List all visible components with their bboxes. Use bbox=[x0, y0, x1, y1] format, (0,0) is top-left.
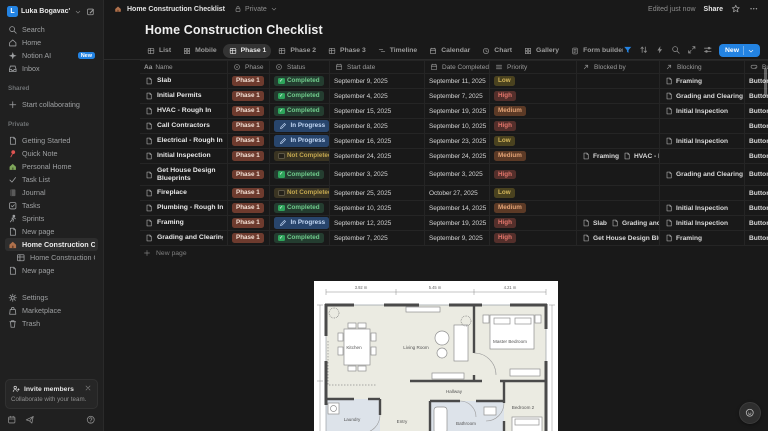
scrollbar-thumb[interactable] bbox=[764, 68, 767, 96]
cell-priority[interactable]: Medium bbox=[490, 201, 577, 215]
gear-icon bbox=[8, 293, 18, 303]
cell-status[interactable]: Not Completed bbox=[270, 186, 330, 200]
cell-date-completed[interactable]: September 19, 2025 bbox=[425, 104, 490, 118]
cell-phase[interactable]: Phase 1 bbox=[228, 149, 270, 163]
cell-phase[interactable]: Phase 1 bbox=[228, 104, 270, 118]
page-icon bbox=[144, 188, 154, 198]
cell-phase[interactable]: Phase 1 bbox=[228, 201, 270, 215]
unchecked-icon bbox=[278, 153, 285, 160]
cell-phase[interactable]: Phase 1 bbox=[228, 134, 270, 148]
view-tab-gallery[interactable]: Gallery bbox=[518, 44, 564, 58]
help-icon[interactable] bbox=[86, 415, 96, 425]
relation-chip[interactable]: Grading and Clearing bbox=[664, 91, 743, 101]
new-badge: New bbox=[78, 52, 95, 59]
notion-ai-fab[interactable] bbox=[739, 402, 761, 424]
cell-date-completed[interactable]: September 3, 2025 bbox=[425, 164, 490, 185]
sidebar-footer bbox=[5, 409, 98, 431]
cell-blocked-by[interactable] bbox=[577, 201, 660, 215]
main-area: Home Construction Checklist Private Edit… bbox=[104, 0, 768, 431]
new-button-label: New bbox=[723, 47, 741, 54]
share-button[interactable]: Share bbox=[704, 6, 723, 13]
page-icon bbox=[144, 136, 154, 146]
home-color-icon bbox=[8, 162, 18, 172]
cell-priority[interactable]: Medium bbox=[490, 149, 577, 163]
relation-chip[interactable]: Slab bbox=[581, 218, 607, 228]
cell-name[interactable]: Electrical - Rough In bbox=[140, 134, 228, 148]
cell-blocked-by[interactable] bbox=[577, 104, 660, 118]
cell-button[interactable]: Button bbox=[745, 186, 768, 200]
face-icon bbox=[745, 408, 755, 418]
sidebar-item-notion-ai[interactable]: Notion AINew bbox=[5, 49, 98, 62]
sidebar-item-label: Search bbox=[22, 25, 45, 34]
checked-icon: ✓ bbox=[278, 235, 285, 242]
page-icon bbox=[144, 76, 154, 86]
cell-phase[interactable]: Phase 1 bbox=[228, 216, 270, 230]
table-icon bbox=[228, 46, 238, 56]
cell-priority[interactable]: High bbox=[490, 231, 577, 245]
cell-date-completed[interactable]: September 19, 2025 bbox=[425, 216, 490, 230]
cell-blocking[interactable] bbox=[660, 149, 745, 163]
new-button[interactable]: New bbox=[719, 44, 760, 57]
cell-blocking[interactable]: Initial Inspection bbox=[660, 134, 745, 148]
cell-phase[interactable]: Phase 1 bbox=[228, 119, 270, 133]
cell-phase[interactable]: Phase 1 bbox=[228, 186, 270, 200]
cell-blocking[interactable]: Initial Inspection bbox=[660, 216, 745, 230]
cell-status[interactable]: ✓Completed bbox=[270, 104, 330, 118]
pencil-icon bbox=[278, 121, 288, 131]
notion-app: L Luka Bogavac's ... SearchHomeNotion AI… bbox=[0, 0, 768, 431]
cell-status[interactable]: In Progress bbox=[270, 119, 330, 133]
relation-chip[interactable]: Initial Inspection bbox=[664, 218, 728, 228]
sidebar-item-tasks[interactable]: Tasks bbox=[5, 199, 98, 212]
breadcrumb[interactable]: Home Construction Checklist bbox=[127, 6, 225, 13]
sidebar-item-marketplace[interactable]: Marketplace bbox=[5, 304, 98, 317]
cell-blocking[interactable] bbox=[660, 186, 745, 200]
cell-button[interactable]: Button bbox=[745, 201, 768, 215]
relation-chip[interactable]: Initial Inspection bbox=[664, 136, 728, 146]
plus-icon bbox=[142, 248, 152, 258]
house-brown-icon bbox=[8, 240, 18, 250]
sidebar: L Luka Bogavac's ... SearchHomeNotion AI… bbox=[0, 0, 104, 431]
view-tab-label: Mobile bbox=[195, 47, 217, 54]
cell-date-completed[interactable]: September 7, 2025 bbox=[425, 89, 490, 103]
table-row: FireplacePhase 1Not CompletedSeptember 2… bbox=[140, 186, 768, 201]
cell-priority[interactable]: High bbox=[490, 89, 577, 103]
relation-chip[interactable]: Initial Inspection bbox=[664, 106, 728, 116]
lock-icon bbox=[233, 4, 243, 14]
column-header-blocking[interactable]: Blocking bbox=[660, 61, 745, 73]
checked-icon: ✓ bbox=[278, 93, 285, 100]
star-icon[interactable] bbox=[731, 4, 741, 14]
sidebar-item-inbox[interactable]: Inbox bbox=[5, 62, 98, 75]
database-table: AaNamePhaseStatusStart dateDate Complete… bbox=[140, 60, 768, 246]
cell-blocked-by[interactable] bbox=[577, 134, 660, 148]
page-icon bbox=[144, 170, 154, 180]
view-tab-phase-1[interactable]: Phase 1 bbox=[223, 44, 272, 58]
sidebar-item-label: Getting Started bbox=[22, 136, 70, 145]
cell-start-date[interactable]: September 7, 2025 bbox=[330, 231, 425, 245]
cell-name[interactable]: Framing bbox=[140, 216, 228, 230]
circle-dot-icon bbox=[232, 62, 242, 72]
sidebar-nav-bottom: SettingsMarketplaceTrash bbox=[5, 291, 98, 330]
send-icon[interactable] bbox=[25, 415, 35, 425]
table-row: Initial InspectionPhase 1Not CompletedSe… bbox=[140, 149, 768, 164]
page-icon bbox=[144, 91, 154, 101]
page-icon bbox=[664, 136, 674, 146]
form-icon bbox=[570, 46, 580, 56]
view-tab-mobile[interactable]: Mobile bbox=[177, 44, 222, 58]
relation-chip[interactable]: Get House Design Blueprints bbox=[581, 233, 660, 243]
rows-icon bbox=[494, 62, 504, 72]
new-button-divider bbox=[743, 46, 744, 55]
plus-icon bbox=[8, 100, 18, 110]
sidebar-item-label: New page bbox=[22, 266, 54, 275]
sort-button[interactable] bbox=[639, 42, 649, 60]
cell-phase[interactable]: Phase 1 bbox=[228, 74, 270, 88]
cell-priority[interactable]: Low bbox=[490, 134, 577, 148]
cell-button[interactable]: Button bbox=[745, 119, 768, 133]
table-row: Plumbing - Rough InPhase 1✓CompletedSept… bbox=[140, 201, 768, 216]
cell-start-date[interactable]: September 4, 2025 bbox=[330, 89, 425, 103]
view-tab-label: Phase 3 bbox=[340, 47, 366, 54]
cell-status[interactable]: In Progress bbox=[270, 134, 330, 148]
cell-phase[interactable]: Phase 1 bbox=[228, 164, 270, 185]
cell-date-completed[interactable]: September 14, 2025 bbox=[425, 201, 490, 215]
cell-start-date[interactable]: September 10, 2025 bbox=[330, 201, 425, 215]
sidebar-item-label: Settings bbox=[22, 293, 48, 302]
inbox-icon bbox=[8, 64, 18, 74]
sidebar-nav-top: SearchHomeNotion AINewInbox bbox=[5, 23, 98, 75]
grid-icon bbox=[182, 46, 192, 56]
table-icon bbox=[327, 46, 337, 56]
cell-priority[interactable]: High bbox=[490, 164, 577, 185]
sliders-button[interactable] bbox=[703, 42, 713, 60]
expand-button[interactable] bbox=[687, 42, 697, 60]
view-tab-label: Timeline bbox=[390, 47, 417, 54]
relation-chip[interactable]: Framing bbox=[664, 76, 702, 86]
cell-name[interactable]: Slab bbox=[140, 74, 228, 88]
cell-blocking[interactable]: Framing bbox=[660, 74, 745, 88]
privacy-toggle[interactable]: Private bbox=[233, 4, 279, 14]
cell-blocked-by[interactable]: Get House Design Blueprints bbox=[577, 231, 660, 245]
chevron-down-icon bbox=[269, 4, 279, 14]
svg-text:Laundry: Laundry bbox=[344, 417, 361, 422]
cell-date-completed[interactable]: September 10, 2025 bbox=[425, 119, 490, 133]
chev-icon bbox=[746, 46, 756, 56]
sidebar-item-label: Tasks bbox=[22, 201, 40, 210]
checked-icon: ✓ bbox=[278, 171, 285, 178]
relation-chip[interactable]: Framing bbox=[664, 233, 702, 243]
cell-date-completed[interactable]: September 23, 2025 bbox=[425, 134, 490, 148]
page-icon bbox=[144, 151, 154, 161]
cell-priority[interactable]: High bbox=[490, 216, 577, 230]
sidebar-item-label: Notion AI bbox=[22, 51, 51, 60]
sidebar-item-new-page[interactable]: New page bbox=[5, 264, 98, 277]
sidebar-item-label: Home bbox=[22, 38, 41, 47]
sidebar-nav-shared: Start collaborating bbox=[5, 98, 98, 111]
cell-priority[interactable]: High bbox=[490, 119, 577, 133]
view-tab-label: Phase 1 bbox=[241, 47, 267, 54]
cell-start-date[interactable]: September 15, 2025 bbox=[330, 104, 425, 118]
cell-blocked-by[interactable] bbox=[577, 119, 660, 133]
ai-icon bbox=[8, 51, 18, 61]
table-row: SlabPhase 1✓CompletedSeptember 9, 2025Se… bbox=[140, 74, 768, 89]
cell-name[interactable]: Fireplace bbox=[140, 186, 228, 200]
sidebar-item-start-collaborating[interactable]: Start collaborating bbox=[5, 98, 98, 111]
cell-button[interactable]: Button bbox=[745, 231, 768, 245]
floorplan-image[interactable]: 3.92 m 5.45 m 4.21 m bbox=[314, 281, 558, 431]
workspace-switcher[interactable]: L Luka Bogavac's ... bbox=[5, 4, 98, 19]
trash-icon bbox=[8, 319, 18, 329]
cell-name[interactable]: Initial Inspection bbox=[140, 149, 228, 163]
column-header-blocked-by[interactable]: Blocked by bbox=[577, 61, 660, 73]
svg-text:Living Room: Living Room bbox=[403, 345, 429, 350]
checked-icon: ✓ bbox=[278, 205, 285, 212]
view-tab-phase-2[interactable]: Phase 2 bbox=[272, 44, 321, 58]
column-header-date-completed[interactable]: Date Completed bbox=[425, 61, 490, 73]
sidebar-item-getting-started[interactable]: Getting Started bbox=[5, 134, 98, 147]
column-header-name[interactable]: AaName bbox=[140, 61, 228, 73]
cell-name[interactable]: HVAC - Rough In bbox=[140, 104, 228, 118]
bolt-button[interactable] bbox=[655, 42, 665, 60]
unchecked-icon bbox=[278, 190, 285, 197]
bag-icon bbox=[8, 306, 18, 316]
cell-name[interactable]: Initial Permits bbox=[140, 89, 228, 103]
page-title: Home Construction Checklist bbox=[145, 23, 768, 37]
sidebar-item-quick-note[interactable]: Quick Note bbox=[5, 147, 98, 160]
cell-button[interactable]: Button bbox=[745, 149, 768, 163]
sidebar-item-new-page[interactable]: New page bbox=[5, 225, 98, 238]
sidebar-item-journal[interactable]: Journal bbox=[5, 186, 98, 199]
cell-blocked-by[interactable] bbox=[577, 74, 660, 88]
sidebar-item-label: Start collaborating bbox=[22, 100, 80, 109]
page-icon bbox=[581, 233, 591, 243]
cell-priority[interactable]: Medium bbox=[490, 104, 577, 118]
cell-blocked-by[interactable] bbox=[577, 186, 660, 200]
sidebar-item-personal-home[interactable]: Personal Home bbox=[5, 160, 98, 173]
svg-text:Hallway: Hallway bbox=[446, 389, 463, 394]
sidebar-item-settings[interactable]: Settings bbox=[5, 291, 98, 304]
svg-text:Bathroom: Bathroom bbox=[456, 421, 476, 426]
filter-button[interactable] bbox=[623, 42, 633, 60]
arrow-icon bbox=[664, 62, 674, 72]
sidebar-item-home[interactable]: Home bbox=[5, 36, 98, 49]
cell-date-completed[interactable]: September 11, 2025 bbox=[425, 74, 490, 88]
new-page-row[interactable]: New page bbox=[142, 246, 768, 260]
book-icon bbox=[8, 188, 18, 198]
view-tab-form-builder[interactable]: Form builder bbox=[565, 44, 623, 58]
cell-start-date[interactable]: September 9, 2025 bbox=[330, 74, 425, 88]
cell-date-completed[interactable]: September 24, 2025 bbox=[425, 149, 490, 163]
cell-button[interactable]: Button bbox=[745, 164, 768, 185]
cell-blocking[interactable] bbox=[660, 119, 745, 133]
run-icon bbox=[8, 214, 18, 224]
page-icon bbox=[8, 266, 18, 276]
cell-priority[interactable]: Low bbox=[490, 186, 577, 200]
search-icon bbox=[8, 25, 18, 35]
view-tab-label: Calendar bbox=[441, 47, 470, 54]
circle-dot-icon bbox=[274, 62, 284, 72]
page-icon bbox=[664, 106, 674, 116]
view-tab-list[interactable]: List bbox=[141, 44, 176, 58]
sidebar-item-label: Sprints bbox=[22, 214, 44, 223]
cell-start-date[interactable]: September 8, 2025 bbox=[330, 119, 425, 133]
view-tab-chart[interactable]: Chart bbox=[476, 44, 517, 58]
cell-button[interactable]: Button bbox=[745, 216, 768, 230]
cell-blocking[interactable]: Initial Inspection bbox=[660, 201, 745, 215]
page-icon bbox=[144, 121, 154, 131]
more-icon[interactable] bbox=[749, 4, 759, 14]
cell-start-date[interactable]: September 3, 2025 bbox=[330, 164, 425, 185]
svg-text:Entry: Entry bbox=[397, 419, 408, 424]
sidebar-item-label: Home Construction Ch... bbox=[30, 253, 95, 262]
sidebar-item-label: Home Construction Chec... bbox=[22, 240, 95, 249]
page-icon bbox=[664, 218, 674, 228]
view-tabs: ListMobilePhase 1Phase 2Phase 3TimelineC… bbox=[141, 44, 623, 58]
cell-status[interactable]: Not Completed bbox=[270, 149, 330, 163]
relation-chip[interactable]: Initial Inspection bbox=[664, 203, 728, 213]
cal-icon bbox=[429, 62, 439, 72]
column-header-start-date[interactable]: Start date bbox=[330, 61, 425, 73]
cell-start-date[interactable]: September 24, 2025 bbox=[330, 149, 425, 163]
table-row: FramingPhase 1In ProgressSeptember 12, 2… bbox=[140, 216, 768, 231]
arrow-icon bbox=[581, 62, 591, 72]
table-row: Initial PermitsPhase 1✓CompletedSeptembe… bbox=[140, 89, 768, 104]
cell-blocking[interactable]: Grading and Clearing bbox=[660, 89, 745, 103]
edited-timestamp: Edited just now bbox=[648, 6, 695, 13]
cell-start-date[interactable]: September 25, 2025 bbox=[330, 186, 425, 200]
table-icon bbox=[16, 253, 26, 263]
close-icon[interactable] bbox=[83, 383, 93, 393]
cell-button[interactable]: Button bbox=[745, 134, 768, 148]
pencil-icon bbox=[278, 218, 288, 228]
cell-button[interactable]: Button bbox=[745, 104, 768, 118]
sidebar-item-label: Trash bbox=[22, 319, 40, 328]
cell-blocked-by[interactable]: FramingHVAC - Rough In bbox=[577, 149, 660, 163]
pin-icon bbox=[8, 149, 18, 159]
page-icon bbox=[8, 136, 18, 146]
page-icon bbox=[664, 76, 674, 86]
calendar-icon[interactable] bbox=[7, 415, 17, 425]
sidebar-item-task-list[interactable]: Task List bbox=[5, 173, 98, 186]
cell-status[interactable]: In Progress bbox=[270, 216, 330, 230]
cell-name[interactable]: Get House Design Blueprints bbox=[140, 164, 228, 185]
cell-name[interactable]: Call Contractors bbox=[140, 119, 228, 133]
sidebar-item-sprints[interactable]: Sprints bbox=[5, 212, 98, 225]
table-row: Get House Design BlueprintsPhase 1✓Compl… bbox=[140, 164, 768, 186]
page-icon bbox=[581, 218, 591, 228]
sidebar-item-label: Quick Note bbox=[22, 149, 58, 158]
cell-blocking[interactable]: Framing bbox=[660, 231, 745, 245]
cell-name[interactable]: Plumbing - Rough In bbox=[140, 201, 228, 215]
view-tab-label: Phase 2 bbox=[290, 47, 316, 54]
btn-icon bbox=[749, 62, 759, 72]
page-icon bbox=[144, 218, 154, 228]
sidebar-item-label: Journal bbox=[22, 188, 46, 197]
page-house-icon bbox=[113, 4, 123, 14]
sidebar-item-home-construction-chec[interactable]: Home Construction Chec... bbox=[5, 238, 98, 251]
sidebar-item-label: Task List bbox=[22, 175, 50, 184]
page-icon bbox=[8, 227, 18, 237]
view-toolbar: New bbox=[623, 42, 760, 60]
page-icon bbox=[581, 151, 591, 161]
cell-phase[interactable]: Phase 1 bbox=[228, 231, 270, 245]
cell-blocked-by[interactable] bbox=[577, 164, 660, 185]
relation-chip[interactable]: Grading and Clearing bbox=[610, 218, 660, 228]
cell-status[interactable]: ✓Completed bbox=[270, 164, 330, 185]
relation-chip[interactable]: Grading and Clearing bbox=[664, 170, 743, 180]
cell-blocking[interactable]: Grading and Clearing bbox=[660, 164, 745, 185]
table-icon bbox=[277, 46, 287, 56]
grid-icon bbox=[523, 46, 533, 56]
clock-icon bbox=[481, 46, 491, 56]
cell-date-completed[interactable]: September 9, 2025 bbox=[425, 231, 490, 245]
page-icon bbox=[144, 203, 154, 213]
checked-icon: ✓ bbox=[278, 108, 285, 115]
cell-date-completed[interactable]: October 27, 2025 bbox=[425, 186, 490, 200]
cell-status[interactable]: ✓Completed bbox=[270, 231, 330, 245]
compose-icon[interactable] bbox=[86, 7, 96, 17]
cell-name[interactable]: Grading and Clearing bbox=[140, 231, 228, 245]
workspace-name: Luka Bogavac's ... bbox=[21, 8, 70, 15]
sidebar-item-home-construction-ch[interactable]: Home Construction Ch... bbox=[5, 251, 98, 264]
workspace-avatar: L bbox=[7, 6, 18, 17]
page-icon bbox=[610, 218, 620, 228]
cell-blocked-by[interactable] bbox=[577, 89, 660, 103]
cell-blocked-by[interactable]: SlabGrading and Clearing bbox=[577, 216, 660, 230]
cell-start-date[interactable]: September 12, 2025 bbox=[330, 216, 425, 230]
table-row: HVAC - Rough InPhase 1✓CompletedSeptembe… bbox=[140, 104, 768, 119]
view-tab-phase-3[interactable]: Phase 3 bbox=[322, 44, 371, 58]
cell-phase[interactable]: Phase 1 bbox=[228, 89, 270, 103]
invite-title: Invite members bbox=[24, 386, 74, 393]
table-row: Call ContractorsPhase 1In ProgressSeptem… bbox=[140, 119, 768, 134]
person-add-icon bbox=[11, 384, 21, 394]
column-header-phase[interactable]: Phase bbox=[228, 61, 270, 73]
sidebar-nav-private: Getting StartedQuick NotePersonal HomeTa… bbox=[5, 134, 98, 277]
relation-chip[interactable]: Framing bbox=[581, 151, 619, 161]
page-icon bbox=[144, 233, 154, 243]
page-icon bbox=[664, 233, 674, 243]
cell-blocking[interactable]: Initial Inspection bbox=[660, 104, 745, 118]
cell-priority[interactable]: Low bbox=[490, 74, 577, 88]
svg-text:3.92 m: 3.92 m bbox=[355, 285, 368, 290]
sidebar-item-label: Marketplace bbox=[22, 306, 61, 315]
table-row: Electrical - Rough InPhase 1In ProgressS… bbox=[140, 134, 768, 149]
column-header-priority[interactable]: Priority bbox=[490, 61, 577, 73]
page-icon bbox=[664, 91, 674, 101]
view-tab-timeline[interactable]: Timeline bbox=[372, 44, 422, 58]
view-tab-calendar[interactable]: Calendar bbox=[423, 44, 475, 58]
sidebar-item-search[interactable]: Search bbox=[5, 23, 98, 36]
home-icon bbox=[8, 38, 18, 48]
table-row: Grading and ClearingPhase 1✓CompletedSep… bbox=[140, 231, 768, 246]
svg-text:Master Bedroom: Master Bedroom bbox=[493, 339, 527, 344]
relation-chip[interactable]: HVAC - Rough In bbox=[622, 151, 660, 161]
invite-members-card[interactable]: Invite members Collaborate with your tea… bbox=[5, 379, 98, 409]
search-button[interactable] bbox=[671, 42, 681, 60]
cell-start-date[interactable]: September 16, 2025 bbox=[330, 134, 425, 148]
cal-icon bbox=[428, 46, 438, 56]
timeline-icon bbox=[377, 46, 387, 56]
cell-status[interactable]: ✓Completed bbox=[270, 201, 330, 215]
floorplan-block: 3.92 m 5.45 m 4.21 m bbox=[104, 281, 768, 431]
sidebar-item-trash[interactable]: Trash bbox=[5, 317, 98, 330]
svg-text:Kitchen: Kitchen bbox=[346, 345, 362, 350]
cell-status[interactable]: ✓Completed bbox=[270, 89, 330, 103]
column-header-status[interactable]: Status bbox=[270, 61, 330, 73]
cell-status[interactable]: ✓Completed bbox=[270, 74, 330, 88]
